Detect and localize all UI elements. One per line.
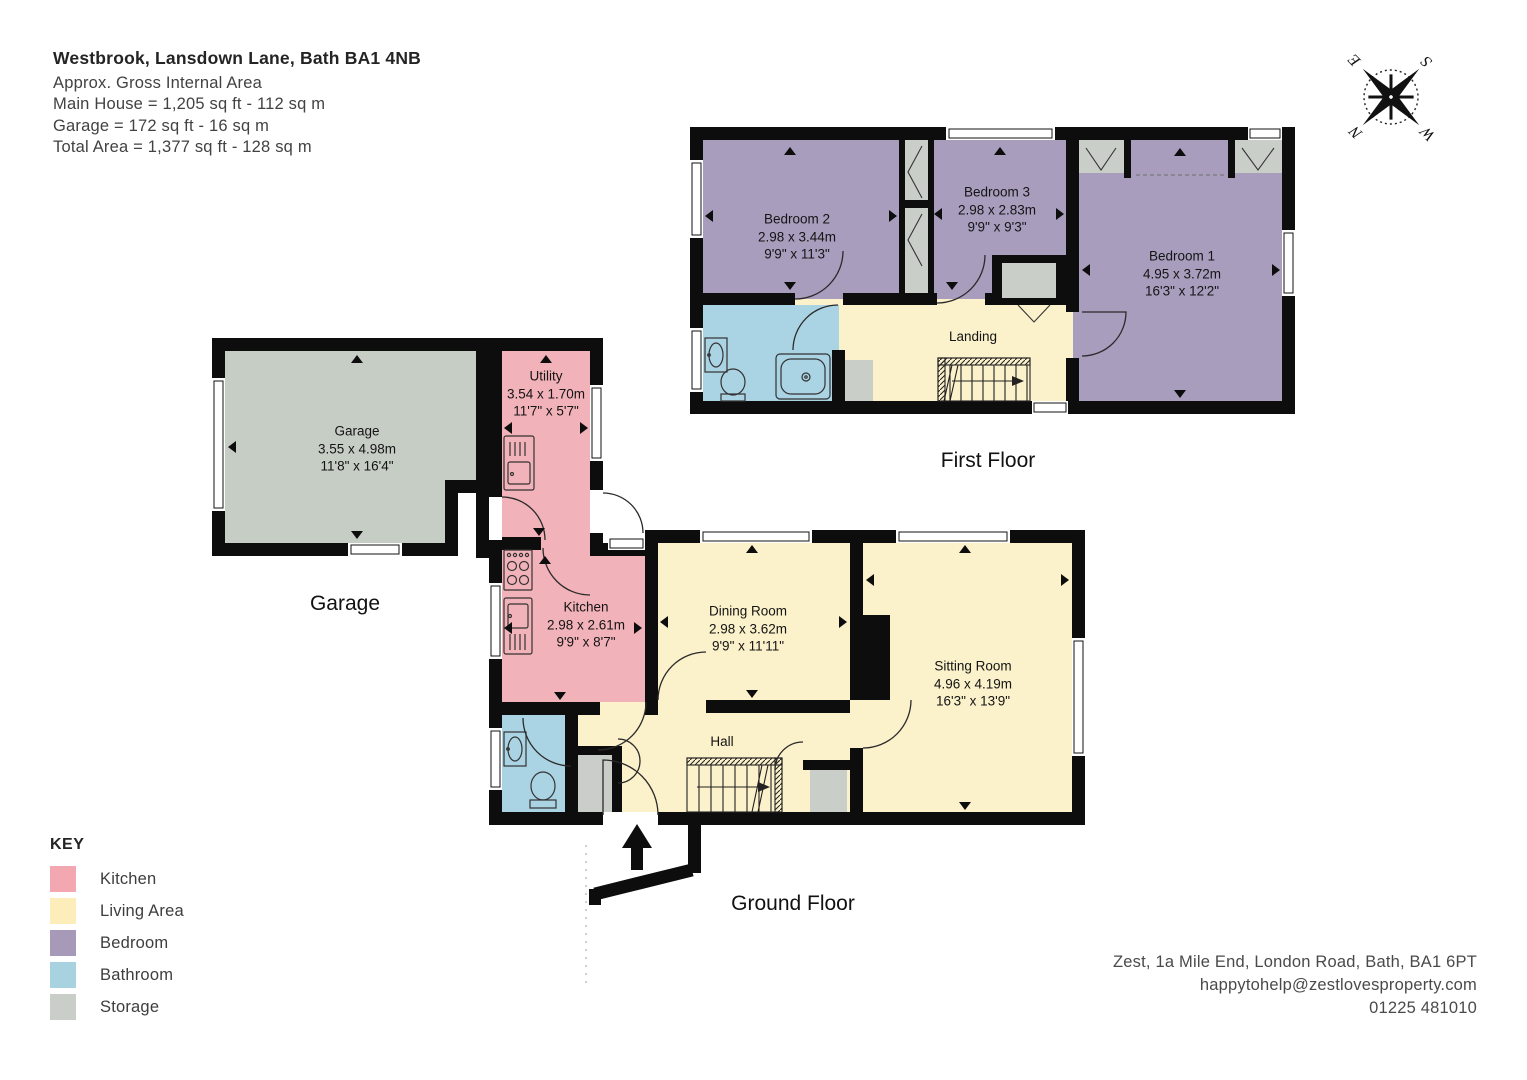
- agent-email: happytohelp@zestlovesproperty.com: [1113, 974, 1477, 997]
- area-line: Approx. Gross Internal Area: [53, 73, 421, 95]
- porch-walls: [586, 825, 701, 988]
- compass-n-label: N: [1345, 121, 1366, 142]
- area-line: Total Area = 1,377 sq ft - 128 sq m: [53, 137, 421, 159]
- garage-window-bottom: [348, 543, 402, 556]
- hall-room-label: Hall: [710, 733, 733, 751]
- ground-floor-caption: Ground Floor: [731, 892, 855, 916]
- sitting-room-label: Sitting Room 4.96 x 4.19m 16'3" x 13'9": [934, 658, 1012, 711]
- bedrooms-closet: [905, 140, 928, 293]
- utility-back-doorway: [590, 490, 603, 533]
- legend: KEY Kitchen Living Area Bedroom Bathroom…: [50, 836, 184, 1026]
- floorplan-drawing: N E S W: [0, 0, 1527, 1080]
- property-address: Westbrook, Lansdown Lane, Bath BA1 4NB: [53, 48, 421, 70]
- bathroom-color-swatch: [50, 962, 76, 988]
- agent-contact: Zest, 1a Mile End, London Road, Bath, BA…: [1113, 951, 1477, 1020]
- hall-closet: [578, 755, 612, 812]
- legend-item-living: Living Area: [50, 898, 184, 924]
- utility-side-doorway: [489, 497, 502, 540]
- bedroom1-wardrobe-left: [1079, 140, 1124, 173]
- landing-cupboard: [845, 360, 873, 401]
- compass-e-label: E: [1345, 50, 1365, 70]
- compass-s-label: S: [1418, 52, 1436, 70]
- legend-title: KEY: [50, 836, 184, 854]
- bedroom-color-swatch: [50, 930, 76, 956]
- entrance-arrow: [622, 824, 652, 870]
- living-color-swatch: [50, 898, 76, 924]
- legend-item-kitchen: Kitchen: [50, 866, 184, 892]
- garage-window-left: [212, 378, 225, 511]
- landing-room: [845, 305, 1066, 401]
- floorplan-page: N E S W Westbrook, Lansdown Lane, Bath B…: [0, 0, 1527, 1080]
- dining-room-label: Dining Room 2.98 x 3.62m 9'9" x 11'11": [709, 603, 787, 656]
- entrance-doorway: [603, 812, 658, 825]
- agent-address: Zest, 1a Mile End, London Road, Bath, BA…: [1113, 951, 1477, 974]
- compass-rose: N E S W: [1310, 15, 1475, 180]
- kitchen-room-label: Kitchen 2.98 x 2.61m 9'9" x 8'7": [547, 599, 625, 652]
- bedroom1-wardrobe-right: [1235, 140, 1282, 173]
- first-floor-caption: First Floor: [941, 449, 1036, 473]
- garage-caption: Garage: [310, 592, 380, 616]
- landing-closet: [1002, 263, 1056, 298]
- legend-item-storage: Storage: [50, 994, 184, 1020]
- legend-item-bathroom: Bathroom: [50, 962, 184, 988]
- area-line: Main House = 1,205 sq ft - 112 sq m: [53, 94, 421, 116]
- bedroom3-label: Bedroom 3 2.98 x 2.83m 9'9" x 9'3": [958, 184, 1036, 237]
- legend-item-bedroom: Bedroom: [50, 930, 184, 956]
- plan-header: Westbrook, Lansdown Lane, Bath BA1 4NB A…: [53, 48, 421, 159]
- understairs-closet: [810, 770, 847, 812]
- chimney-breast: [863, 615, 890, 700]
- area-line: Garage = 172 sq ft - 16 sq m: [53, 116, 421, 138]
- compass-w-label: W: [1416, 122, 1439, 145]
- agent-phone: 01225 481010: [1113, 997, 1477, 1020]
- landing-label: Landing: [949, 328, 997, 346]
- bedroom2-label: Bedroom 2 2.98 x 3.44m 9'9" x 11'3": [758, 211, 836, 264]
- garage-room-label: Garage 3.55 x 4.98m 11'8" x 16'4": [318, 423, 396, 476]
- bedroom1-label: Bedroom 1 4.95 x 3.72m 16'3" x 12'2": [1143, 248, 1221, 301]
- utility-room-label: Utility 3.54 x 1.70m 11'7" x 5'7": [507, 368, 585, 421]
- kitchen-color-swatch: [50, 866, 76, 892]
- storage-color-swatch: [50, 994, 76, 1020]
